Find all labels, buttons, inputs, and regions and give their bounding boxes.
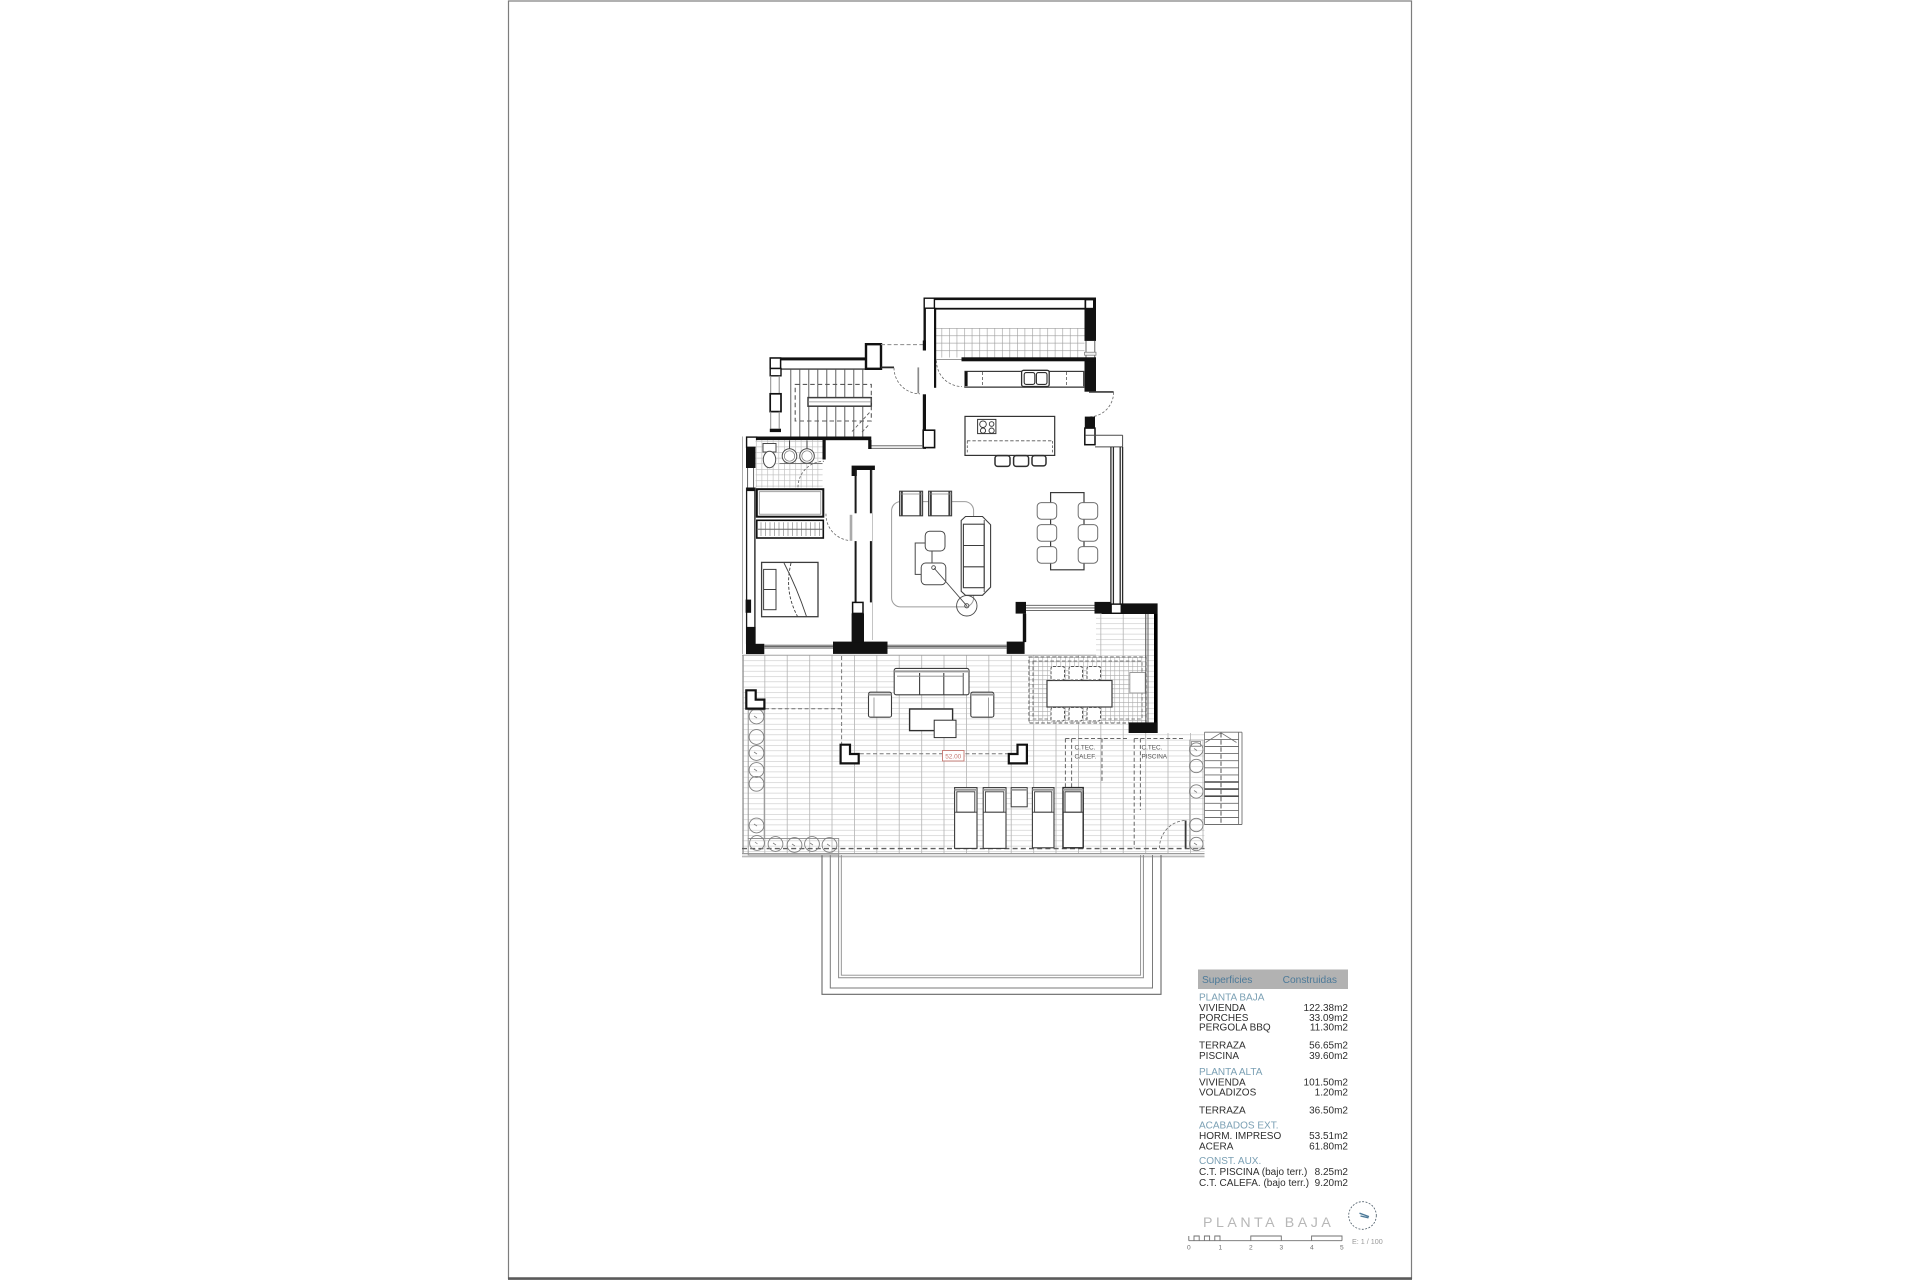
svg-text:VOLADIZOS: VOLADIZOS [1199, 1088, 1257, 1099]
svg-text:52.00: 52.00 [945, 753, 961, 760]
svg-text:56.65m2: 56.65m2 [1309, 1041, 1348, 1052]
svg-text:C.T. CALEFA. (bajo terr.): C.T. CALEFA. (bajo terr.) [1199, 1178, 1309, 1189]
svg-text:53.51m2: 53.51m2 [1309, 1131, 1348, 1142]
svg-text:8.25m2: 8.25m2 [1315, 1167, 1349, 1178]
svg-text:ACERA: ACERA [1199, 1142, 1234, 1153]
svg-text:36.50m2: 36.50m2 [1309, 1106, 1348, 1117]
svg-text:Superficies: Superficies [1202, 975, 1252, 986]
svg-text:1.20m2: 1.20m2 [1315, 1088, 1349, 1099]
svg-text:9.20m2: 9.20m2 [1315, 1178, 1349, 1189]
svg-text:E: 1 / 100: E: 1 / 100 [1352, 1237, 1383, 1246]
svg-text:1: 1 [1219, 1245, 1223, 1252]
svg-text:2: 2 [1249, 1245, 1253, 1252]
svg-text:11.30m2: 11.30m2 [1310, 1023, 1349, 1034]
svg-text:HORM. IMPRESO: HORM. IMPRESO [1199, 1131, 1281, 1142]
svg-text:TERRAZA: TERRAZA [1199, 1041, 1246, 1052]
svg-text:CONST. AUX.: CONST. AUX. [1199, 1156, 1261, 1167]
svg-text:PLANTA BAJA: PLANTA BAJA [1203, 1215, 1334, 1231]
svg-text:3: 3 [1280, 1245, 1284, 1252]
svg-text:Construidas: Construidas [1283, 975, 1337, 986]
svg-text:TERRAZA: TERRAZA [1199, 1106, 1246, 1117]
svg-text:PERGOLA BBQ: PERGOLA BBQ [1199, 1023, 1271, 1034]
svg-text:5: 5 [1340, 1245, 1344, 1252]
svg-text:C.TEC.: C.TEC. [1075, 745, 1096, 752]
svg-text:PISCINA: PISCINA [1142, 754, 1168, 761]
svg-text:39.60m2: 39.60m2 [1309, 1051, 1348, 1062]
svg-text:4: 4 [1310, 1245, 1314, 1252]
svg-text:PLANTA BAJA: PLANTA BAJA [1199, 993, 1265, 1004]
svg-text:C.TEC.: C.TEC. [1142, 745, 1163, 752]
svg-text:CALEF.: CALEF. [1075, 754, 1097, 761]
svg-text:C.T. PISCINA (bajo terr.): C.T. PISCINA (bajo terr.) [1199, 1167, 1307, 1178]
svg-text:61.80m2: 61.80m2 [1309, 1142, 1348, 1153]
svg-text:PISCINA: PISCINA [1199, 1051, 1239, 1062]
svg-text:0: 0 [1187, 1245, 1191, 1252]
svg-text:ACABADOS EXT.: ACABADOS EXT. [1199, 1121, 1278, 1132]
svg-text:PLANTA ALTA: PLANTA ALTA [1199, 1067, 1263, 1078]
